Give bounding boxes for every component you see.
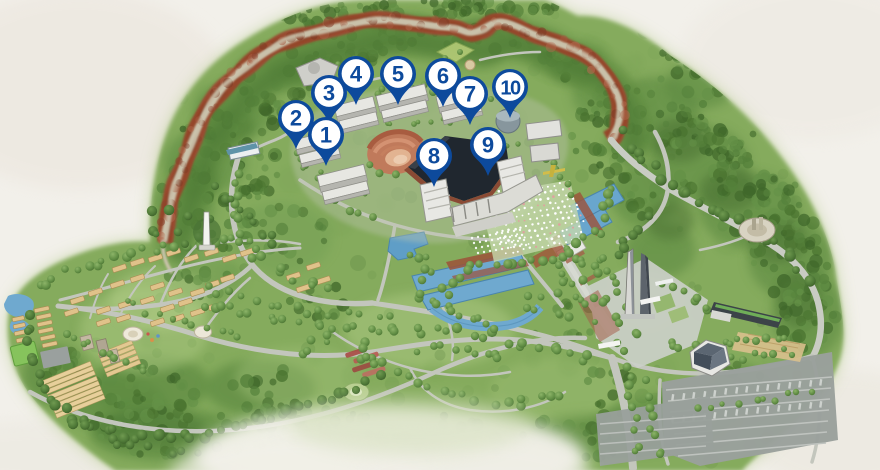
svg-text:6: 6 xyxy=(437,63,449,88)
svg-text:10: 10 xyxy=(500,77,521,99)
svg-text:2: 2 xyxy=(290,105,302,130)
svg-text:8: 8 xyxy=(428,143,440,168)
svg-text:5: 5 xyxy=(392,61,404,86)
svg-text:1: 1 xyxy=(320,122,332,147)
svg-text:7: 7 xyxy=(464,81,476,106)
svg-text:9: 9 xyxy=(482,132,494,157)
svg-text:4: 4 xyxy=(350,61,363,86)
svg-text:3: 3 xyxy=(323,80,335,105)
